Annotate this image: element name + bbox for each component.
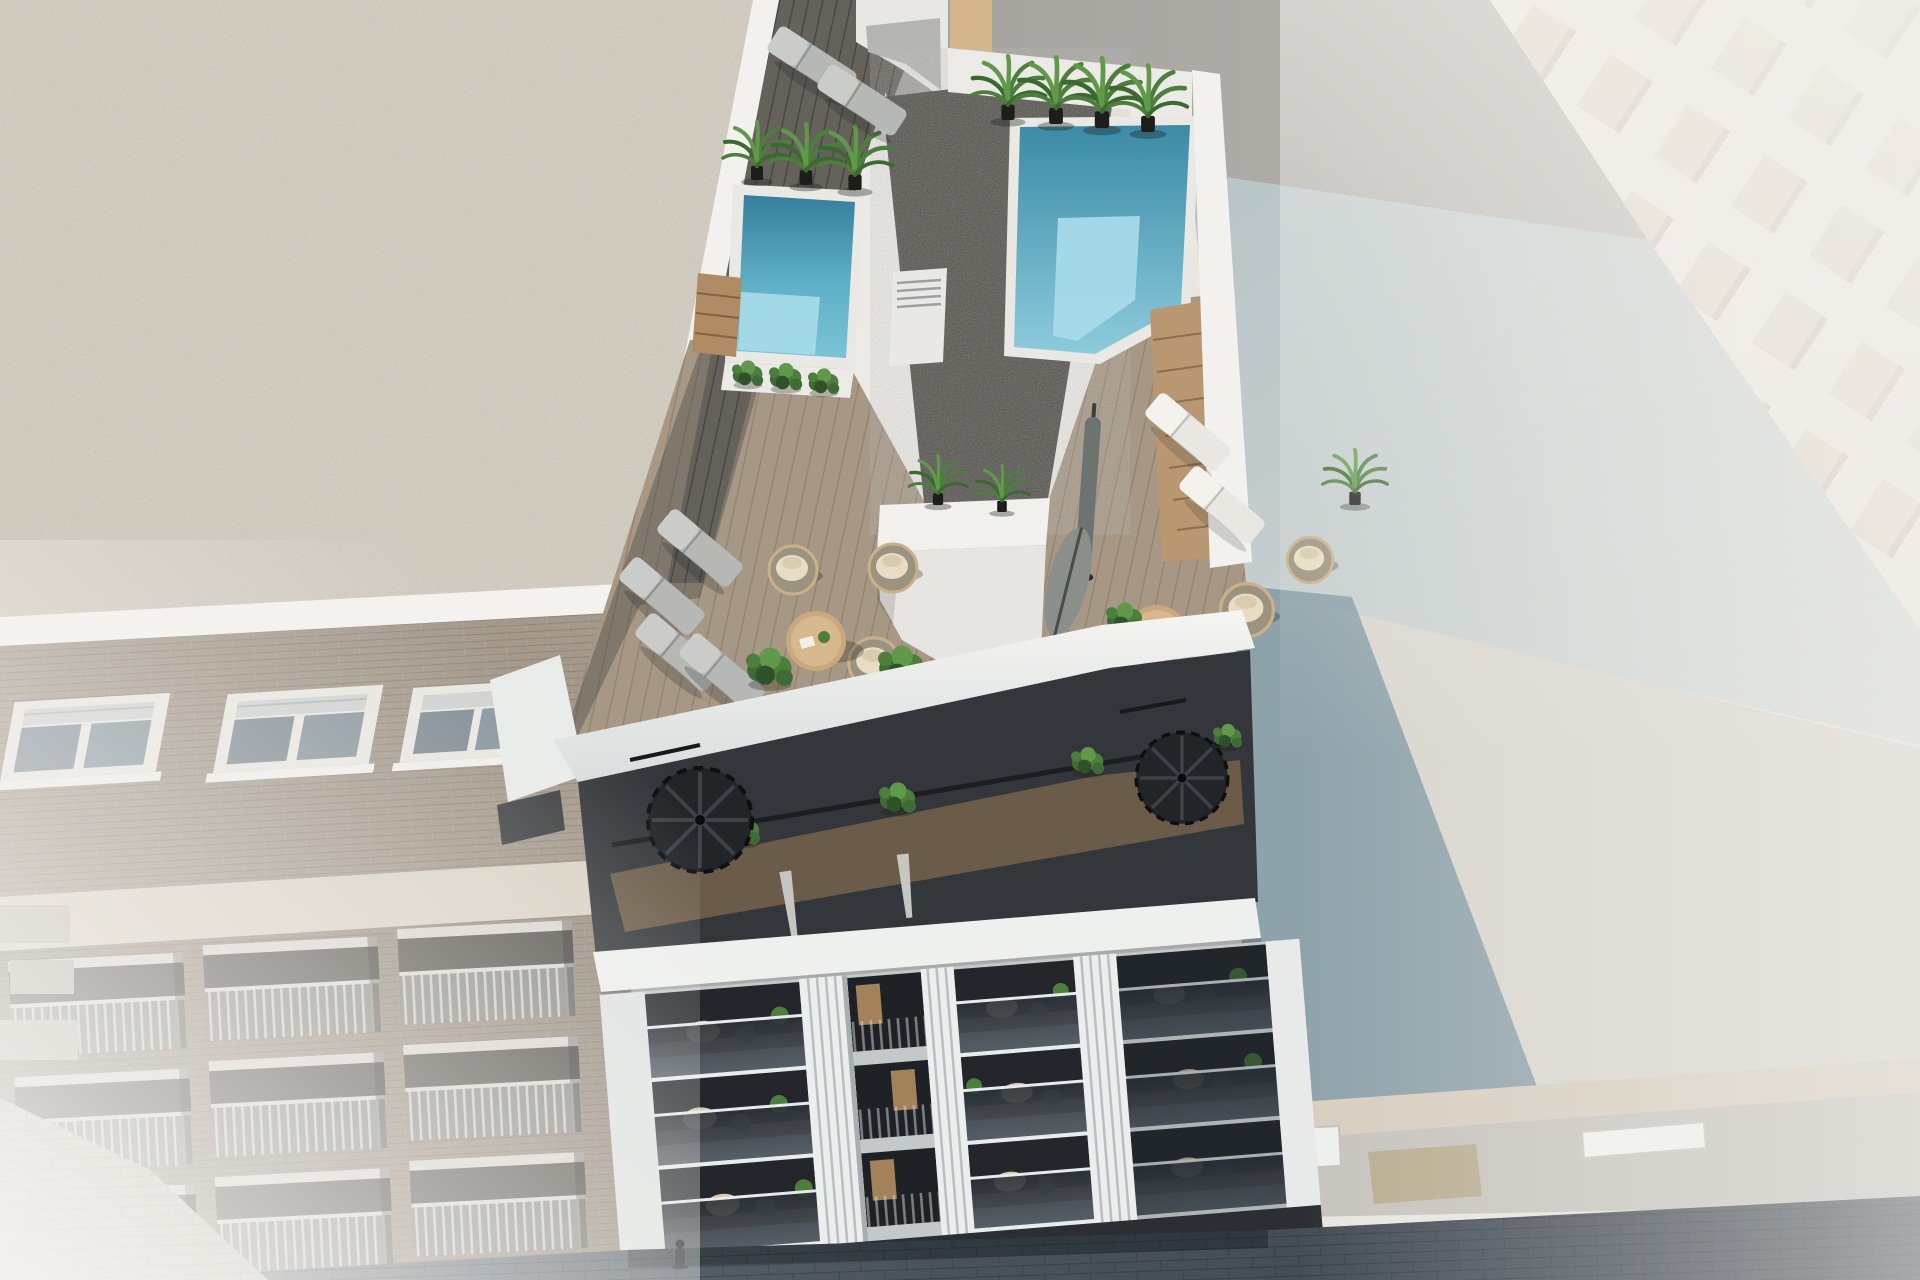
render-canvas: [0, 0, 1920, 1280]
facade: [600, 939, 1327, 1280]
spiral-staircase-right: [1136, 732, 1228, 824]
pool-shallow-step: [738, 292, 820, 355]
core-top-band: [877, 498, 1050, 552]
right-haze: [1300, 0, 1920, 1280]
architectural-render: [0, 0, 1920, 1280]
bottom-left-fog: [0, 540, 700, 1280]
